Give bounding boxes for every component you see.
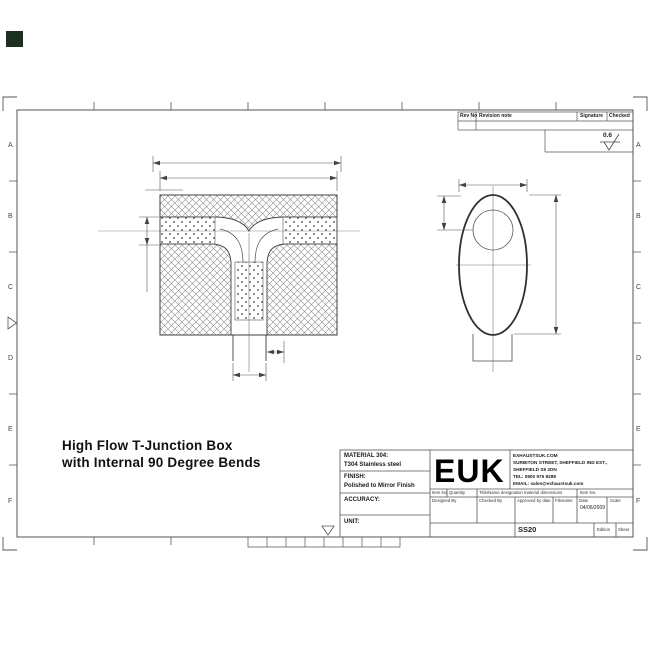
outlet-stub	[233, 335, 266, 361]
front-view	[98, 156, 360, 381]
left-center-triangle	[8, 317, 17, 329]
title-name-header: Title/Name designation material dimensio…	[479, 491, 562, 495]
surface-finish-value: 0.6	[603, 133, 612, 140]
item-no2-header: Item No.	[580, 491, 596, 495]
centering-marks	[8, 317, 334, 535]
row-label-left-d: D	[8, 355, 13, 362]
drawing-title-line2: with Internal 90 Degree Bends	[62, 456, 261, 470]
fold-mark-scale	[248, 537, 400, 547]
left-wall-hatched	[160, 244, 231, 335]
company-line5: EMAIL: sales@exhaustsuk.com	[513, 481, 583, 488]
bottom-center-triangle	[322, 526, 334, 535]
end-view-dimensions	[437, 179, 561, 334]
right-wall-hatched	[267, 244, 337, 335]
row-label-left-b: B	[8, 213, 13, 220]
finish-value: Polished to Mirror Finish	[344, 483, 415, 489]
revision-note-header: Revision note	[479, 114, 512, 119]
row-label-right-e: E	[636, 426, 641, 433]
material-value: T304 Stainless steel	[344, 462, 401, 468]
row-label-right-d: D	[636, 355, 641, 362]
company-line1: EXHAUSTSUK.COM	[513, 453, 558, 460]
drawing-title-line1: High Flow T-Junction Box	[62, 439, 233, 453]
drawing-sheet: A B C D E F A B C D E F Rev No Revision …	[0, 0, 650, 650]
sheet-label: Sheet	[618, 528, 629, 532]
designed-by-label: Designed By	[432, 499, 456, 503]
checked-by-label: Checked By	[479, 499, 502, 503]
drawing-number: SS20	[518, 526, 536, 534]
date-label: Date	[579, 499, 588, 503]
company-line4: TEL: 0800 975 9288	[513, 474, 556, 481]
company-line2: SURBITON STREET, SHEFFIELD IND EST.,	[513, 460, 607, 467]
row-label-left-c: C	[8, 284, 13, 291]
signature-header: Signature	[580, 114, 603, 119]
scale-label: Scale	[610, 499, 621, 503]
approved-label: Approved by date	[517, 499, 551, 503]
row-label-right-a: A	[636, 142, 641, 149]
sheet-linework	[0, 0, 650, 650]
row-label-left-a: A	[8, 142, 13, 149]
company-logo: EUK	[434, 455, 505, 487]
end-view	[437, 179, 561, 372]
checked-header: Checked	[609, 114, 630, 119]
date-value: 04/06/2009	[580, 506, 605, 511]
rev-no-header: Rev No	[460, 114, 477, 119]
row-label-left-f: F	[8, 498, 12, 505]
edition-label: Edition	[597, 528, 610, 532]
row-label-right-c: C	[636, 284, 641, 291]
unit-label: UNIT:	[344, 519, 359, 525]
finish-label: FINISH:	[344, 474, 366, 480]
item-no-header: Item No	[432, 491, 447, 495]
row-label-right-f: F	[636, 498, 640, 505]
company-line3: SHEFFIELD S9 2DN	[513, 467, 557, 474]
row-label-right-b: B	[636, 213, 641, 220]
left-perforated-baffle	[160, 217, 215, 244]
quantity-header: Quantity	[449, 491, 465, 495]
page-corner-marker	[6, 31, 23, 47]
filename-label: Filename	[555, 499, 573, 503]
end-outlet-stub	[473, 334, 512, 361]
accuracy-label: ACCURACY:	[344, 497, 380, 503]
row-label-left-e: E	[8, 426, 13, 433]
right-perforated-baffle	[283, 217, 337, 244]
material-label: MATERIAL 304:	[344, 453, 388, 459]
